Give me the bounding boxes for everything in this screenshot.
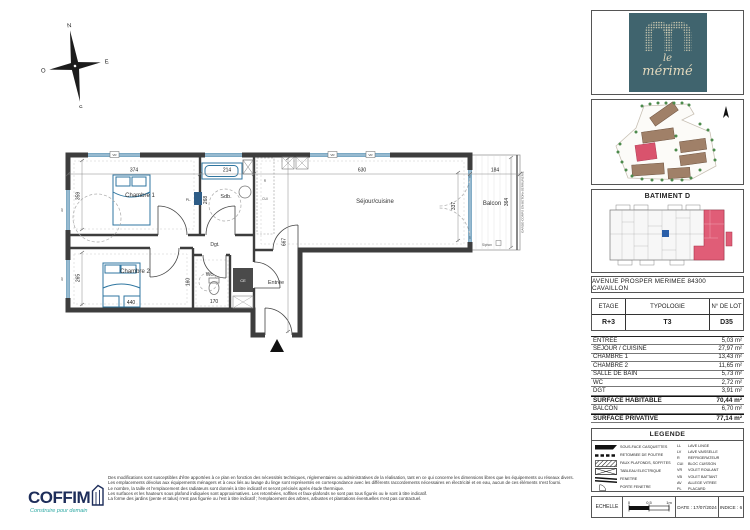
dim-balcon-w: 184 <box>491 168 500 174</box>
lot-header-numlot: N° DE LOT <box>710 299 743 315</box>
table-row: WC2,72 m² <box>591 379 744 387</box>
dim-total-h: 667 <box>282 238 288 247</box>
chambre2-label: Chambre 2 <box>120 269 150 275</box>
building-key-box: BATIMENT D <box>591 189 744 273</box>
dim-balcon-h: 364 <box>504 198 510 207</box>
dim-sejour-w: 630 <box>358 168 367 174</box>
batiment-title: BATIMENT D <box>592 190 743 200</box>
svg-text:AV: AV <box>60 277 64 281</box>
date-label: DATE : 17/07/2024 <box>676 497 719 517</box>
dim-sdb-h: 268 <box>203 196 209 205</box>
window-symbol-icon <box>595 476 617 483</box>
sdb-label: Sdb. <box>220 194 232 200</box>
entree-label: Entrée <box>268 280 284 286</box>
brand-tagline: Construire pour demain <box>30 508 123 514</box>
false-ceiling-symbol-icon <box>595 460 617 467</box>
svg-text:1m: 1m <box>666 500 672 505</box>
table-row: CHAMBRE 113,43 m² <box>591 354 744 362</box>
electrical-panel-symbol-icon <box>595 468 617 475</box>
dim-chambre1-h: 359 <box>76 192 82 201</box>
site-north-arrow-icon <box>723 106 729 118</box>
site-plan-map <box>592 100 743 184</box>
table-row: SALLE DE BAIN5,73 m² <box>591 371 744 379</box>
surface-table: ENTREE5,03 m² SEJOUR / CUISINE27,97 m² C… <box>591 336 744 425</box>
table-row: ENTREE5,03 m² <box>591 337 744 345</box>
svg-text:0: 0 <box>628 500 631 505</box>
compass-south-label: S <box>79 105 84 108</box>
table-row-surface-habitable: SURFACE HABITABLE70,44 m² <box>591 396 744 406</box>
pl-label: PL. <box>186 198 191 202</box>
echelle-label: ECHELLE <box>592 497 623 517</box>
dim-chambre1-w: 374 <box>130 168 139 174</box>
building-icon <box>91 484 107 506</box>
compass-east-label: E <box>104 59 109 66</box>
compass-rose-icon: N E O S <box>35 18 115 108</box>
svg-text:AV: AV <box>60 208 64 212</box>
soffit-symbol-icon <box>595 444 617 451</box>
garde-corps-label: GARDE-CORPS EN BETON+SERRURERIE <box>521 171 525 233</box>
logo-line2: mérimé <box>642 65 692 78</box>
dim-sdb-w: 214 <box>223 168 232 174</box>
lot-value-typologie: T3 <box>626 315 710 330</box>
legend-abbreviations: LLLAVE LINGE LVLAVE VAISSELLE RREFRIGERA… <box>677 443 741 492</box>
dim-sejour-h: 337 <box>451 202 457 211</box>
lot-table: ETAGE TYPOLOGIE N° DE LOT R+3 T3 D35 <box>591 298 744 331</box>
table-row: DGT3,91 m² <box>591 387 744 395</box>
lot-value-numlot: D35 <box>710 315 743 330</box>
compass-west-label: O <box>41 68 47 75</box>
dim-wc-h: 160 <box>186 278 192 287</box>
legal-disclaimer: Des modifications sont susceptibles d'êt… <box>108 475 582 501</box>
table-row-surface-privative: SURFACE PRIVATIVE77,14 m² <box>591 414 744 424</box>
entrance-arrow-icon <box>270 339 284 352</box>
brand-name: COFFIM <box>28 489 90 506</box>
sejour-label: Séjour/cuisine <box>356 199 394 205</box>
svg-text:0,5: 0,5 <box>646 500 652 505</box>
beam-symbol-icon <box>595 452 617 459</box>
scale-bar: 0 0,5 1m <box>623 499 675 515</box>
dgt-label: Dgt. <box>210 242 219 248</box>
placard <box>194 192 202 205</box>
logo-line1: le <box>663 54 672 64</box>
address-box: AVENUE PROSPER MERIMEE 84300 CAVAILLON <box>591 276 744 293</box>
disclaimer-line: La forme des jardins (pente et talus) n'… <box>108 496 582 501</box>
table-row: SEJOUR / CUISINE27,97 m² <box>591 345 744 353</box>
lot-header-etage: ETAGE <box>592 299 626 315</box>
legend-title: LEGENDE <box>592 429 743 441</box>
building-key-plan <box>592 200 743 268</box>
compass-north-label: N <box>67 23 72 30</box>
ce-label: CE <box>240 278 246 283</box>
plan-sheet: N E O S Balcon GARDE-CORPS EN BETON+SERR… <box>0 0 750 530</box>
title-bar: ECHELLE 0 0,5 1m DATE : 17/07/2024 INDIC… <box>591 496 744 518</box>
legend-symbols: SOUS-FACE CASQUETTES RETOMBEE DE POUTRE … <box>595 443 677 492</box>
legend-box: LEGENDE SOUS-FACE CASQUETTES RETOMBEE DE… <box>591 428 744 492</box>
svg-text:CUI: CUI <box>262 197 268 201</box>
table-row: BALCON6,70 m² <box>591 405 744 413</box>
dim-chambre2-w: 440 <box>127 300 136 306</box>
table-row: CHAMBRE 211,65 m² <box>591 362 744 370</box>
balcon-label: Balcon <box>483 201 501 207</box>
indice-label: INDICE : 6 <box>719 497 743 517</box>
french-door-symbol-icon <box>595 484 617 491</box>
brand-logo-box: le mérimé <box>591 10 744 95</box>
site-plan-box <box>591 99 744 185</box>
dim-chambre2-h: 265 <box>76 274 82 283</box>
address-text: AVENUE PROSPER MERIMEE 84300 CAVAILLON <box>592 278 743 292</box>
le-merime-logo: le mérimé <box>629 13 707 92</box>
disclaimer-line: Les emplacements dévolus aux équipements… <box>108 480 582 485</box>
siphon-label: Siphon <box>482 243 492 247</box>
dim-wc-w: 170 <box>210 299 219 305</box>
wc-label: Wc. <box>206 272 215 278</box>
lot-header-typologie: TYPOLOGIE <box>626 299 710 315</box>
highlighted-building <box>635 143 657 162</box>
chambre1-label: Chambre 1 <box>125 193 155 199</box>
dotted-m-icon <box>640 18 696 52</box>
floor-plan: Balcon GARDE-CORPS EN BETON+SERRURERIE 3… <box>30 130 585 380</box>
lot-value-etage: R+3 <box>592 315 626 330</box>
